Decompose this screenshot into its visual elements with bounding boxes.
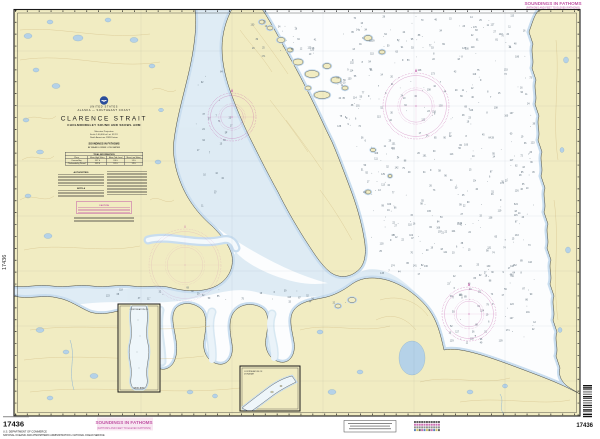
publisher-line-1: U.S. DEPARTMENT OF COMMERCE — [3, 430, 47, 434]
chart-subtitle: CHOLMONDELEY SOUND AND SKOWL ARM — [58, 124, 150, 127]
print-color-bar — [414, 421, 440, 431]
inset-a-label-2: WEST ARM — [134, 387, 145, 390]
chart-title: CLARENCE STRAIT — [58, 115, 150, 123]
inset-a-label-1: CONTINUATION OF — [130, 308, 149, 311]
bottom-soundings-note: SOUNDINGS IN FATHOMS — [95, 420, 152, 425]
authorities-heading: AUTHORITIES — [58, 171, 104, 174]
tidal-table: TIDAL INFORMATIONPlaceMean High WaterMea… — [65, 152, 143, 165]
datum-note: North American 1983 Datum — [58, 136, 150, 139]
note-a-heading: NOTE A — [58, 187, 104, 190]
chart-number-left-edge: 17436 — [2, 255, 8, 270]
barcode — [583, 385, 592, 417]
bottom-soundings-subnote: (FATHOMS AND FEET TO ELEVEN FATHOMS) — [97, 427, 151, 430]
inset-dora-bay: CONTINUATION OF DORA BAY — [240, 366, 300, 412]
title-region: ALASKA — SOUTHEAST COAST — [58, 109, 150, 112]
chart-number-bottom-left: 17436 — [3, 420, 24, 429]
top-right-soundings-subnote: (FATHOMS AND FEET TO ELEVEN FATHOMS) — [526, 6, 580, 9]
publisher-line-2: NATIONAL OCEANIC AND ATMOSPHERIC ADMINIS… — [3, 434, 105, 437]
top-right-soundings-note: SOUNDINGS IN FATHOMS — [524, 1, 581, 6]
chart-notes: AUTHORITIES NOTE A — [58, 169, 150, 197]
title-block: UNITED STATES ALASKA — SOUTHEAST COAST C… — [58, 96, 150, 222]
nautical-chart-page: 1316341866913918143583341191272316507021… — [0, 0, 600, 439]
soundings-unit-line2: AT MEAN LOWER LOW WATER — [58, 146, 150, 149]
peninsula-lagoon — [399, 341, 425, 375]
inset-b-label-2: DORA BAY — [244, 373, 255, 376]
caution-heading: CAUTION — [78, 204, 130, 207]
bottom-note-box — [344, 421, 396, 433]
chart-number-bottom-right: 17436 — [576, 423, 593, 429]
noaa-logo-icon — [100, 96, 109, 105]
edition-microline — [3, 416, 29, 417]
inset-b-label-1: CONTINUATION OF — [244, 370, 263, 373]
caution-box: CAUTION — [77, 201, 132, 214]
inset-west-arm: CONTINUATION OF WEST ARM — [118, 304, 160, 392]
